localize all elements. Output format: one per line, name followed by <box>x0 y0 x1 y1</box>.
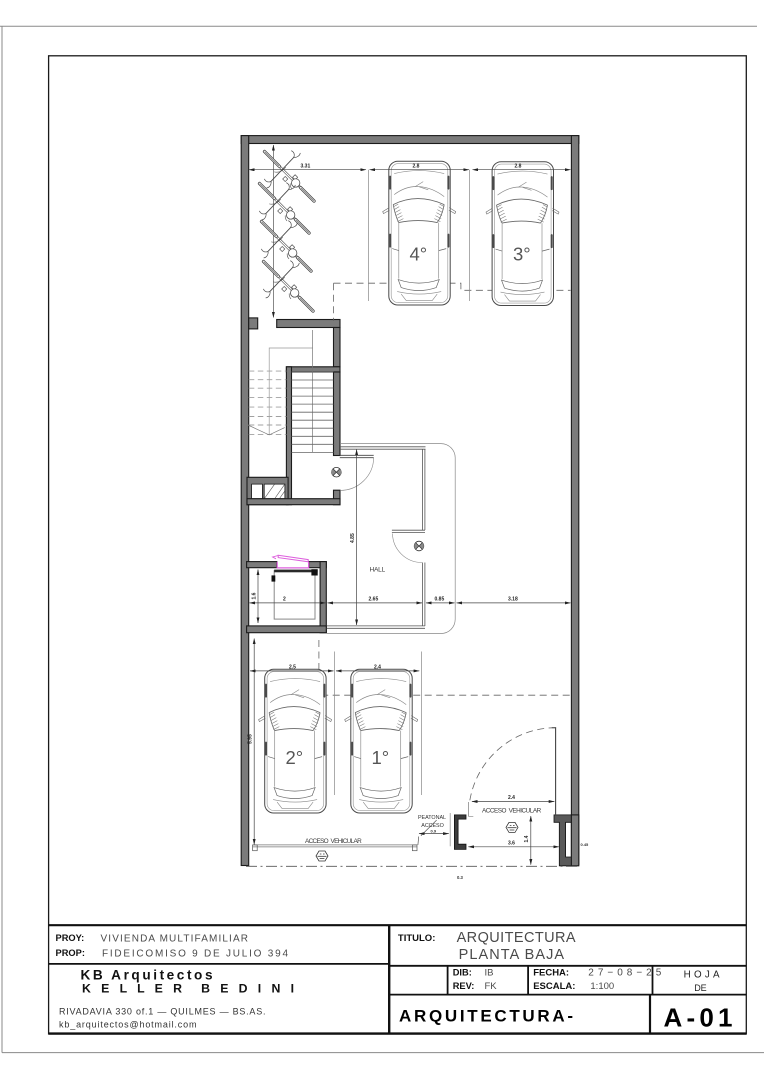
svg-text:2: 2 <box>283 596 286 602</box>
svg-text:2.4: 2.4 <box>374 664 381 670</box>
svg-text:0.3: 0.3 <box>457 875 463 880</box>
svg-text:0.9: 0.9 <box>431 828 437 833</box>
svg-text:0.45: 0.45 <box>581 842 590 847</box>
svg-text:REV:: REV: <box>453 981 475 991</box>
svg-text:DE: DE <box>694 983 707 993</box>
svg-text:DIB:: DIB: <box>453 968 472 978</box>
svg-text:3.31: 3.31 <box>301 163 311 169</box>
svg-text:5.95: 5.95 <box>248 734 254 744</box>
svg-text:2.8: 2.8 <box>515 163 522 169</box>
svg-text:VIVIENDA MULTIFAMILIAR: VIVIENDA MULTIFAMILIAR <box>101 934 249 945</box>
svg-text:FK: FK <box>485 981 498 992</box>
svg-text:4°: 4° <box>410 244 428 265</box>
svg-text:ACCESO VEHICULAR: ACCESO VEHICULAR <box>482 807 542 814</box>
svg-text:2.4: 2.4 <box>508 795 515 801</box>
svg-text:kb_arquitectos@hotmail.com: kb_arquitectos@hotmail.com <box>59 1020 197 1030</box>
svg-text:PLANTA BAJA: PLANTA BAJA <box>459 947 565 963</box>
svg-text:PROP:: PROP: <box>56 948 85 958</box>
svg-text:PROY:: PROY: <box>56 933 85 943</box>
svg-text:1°: 1° <box>372 747 390 768</box>
svg-text:1.4: 1.4 <box>524 835 530 842</box>
svg-text:4.85: 4.85 <box>350 533 356 543</box>
svg-text:2°: 2° <box>286 747 304 768</box>
svg-text:0.85: 0.85 <box>435 596 445 602</box>
svg-text:TITULO:: TITULO: <box>398 933 435 944</box>
svg-text:RIVADAVIA 330 of.1 — QUILM: RIVADAVIA 330 of.1 — QUILMES — BS.AS. <box>59 1007 266 1017</box>
svg-text:FIDEICOMISO 9 DE JULIO 394: FIDEICOMISO 9 DE JULIO 394 <box>102 949 288 960</box>
svg-text:1.6: 1.6 <box>251 592 257 599</box>
svg-text:3°: 3° <box>513 244 531 265</box>
svg-text:ESCALA:: ESCALA: <box>533 981 575 992</box>
svg-text:IB: IB <box>485 968 494 979</box>
svg-text:2.65: 2.65 <box>369 596 379 602</box>
svg-text:2.8: 2.8 <box>413 163 420 169</box>
svg-text:ACCESO VEHICULAR: ACCESO VEHICULAR <box>305 838 362 845</box>
svg-text:2.5: 2.5 <box>289 664 296 670</box>
svg-text:HALL: HALL <box>370 567 386 574</box>
svg-text:3.6: 3.6 <box>508 840 515 846</box>
svg-text:1:100: 1:100 <box>590 981 614 992</box>
svg-text:ARQUITECTURA: ARQUITECTURA <box>457 930 576 946</box>
svg-text:PEATONAL: PEATONAL <box>418 815 446 821</box>
svg-text:FECHA:: FECHA: <box>533 968 569 979</box>
svg-text:3.18: 3.18 <box>508 596 518 602</box>
svg-text:ARQUITECTURA-: ARQUITECTURA- <box>399 1007 573 1026</box>
